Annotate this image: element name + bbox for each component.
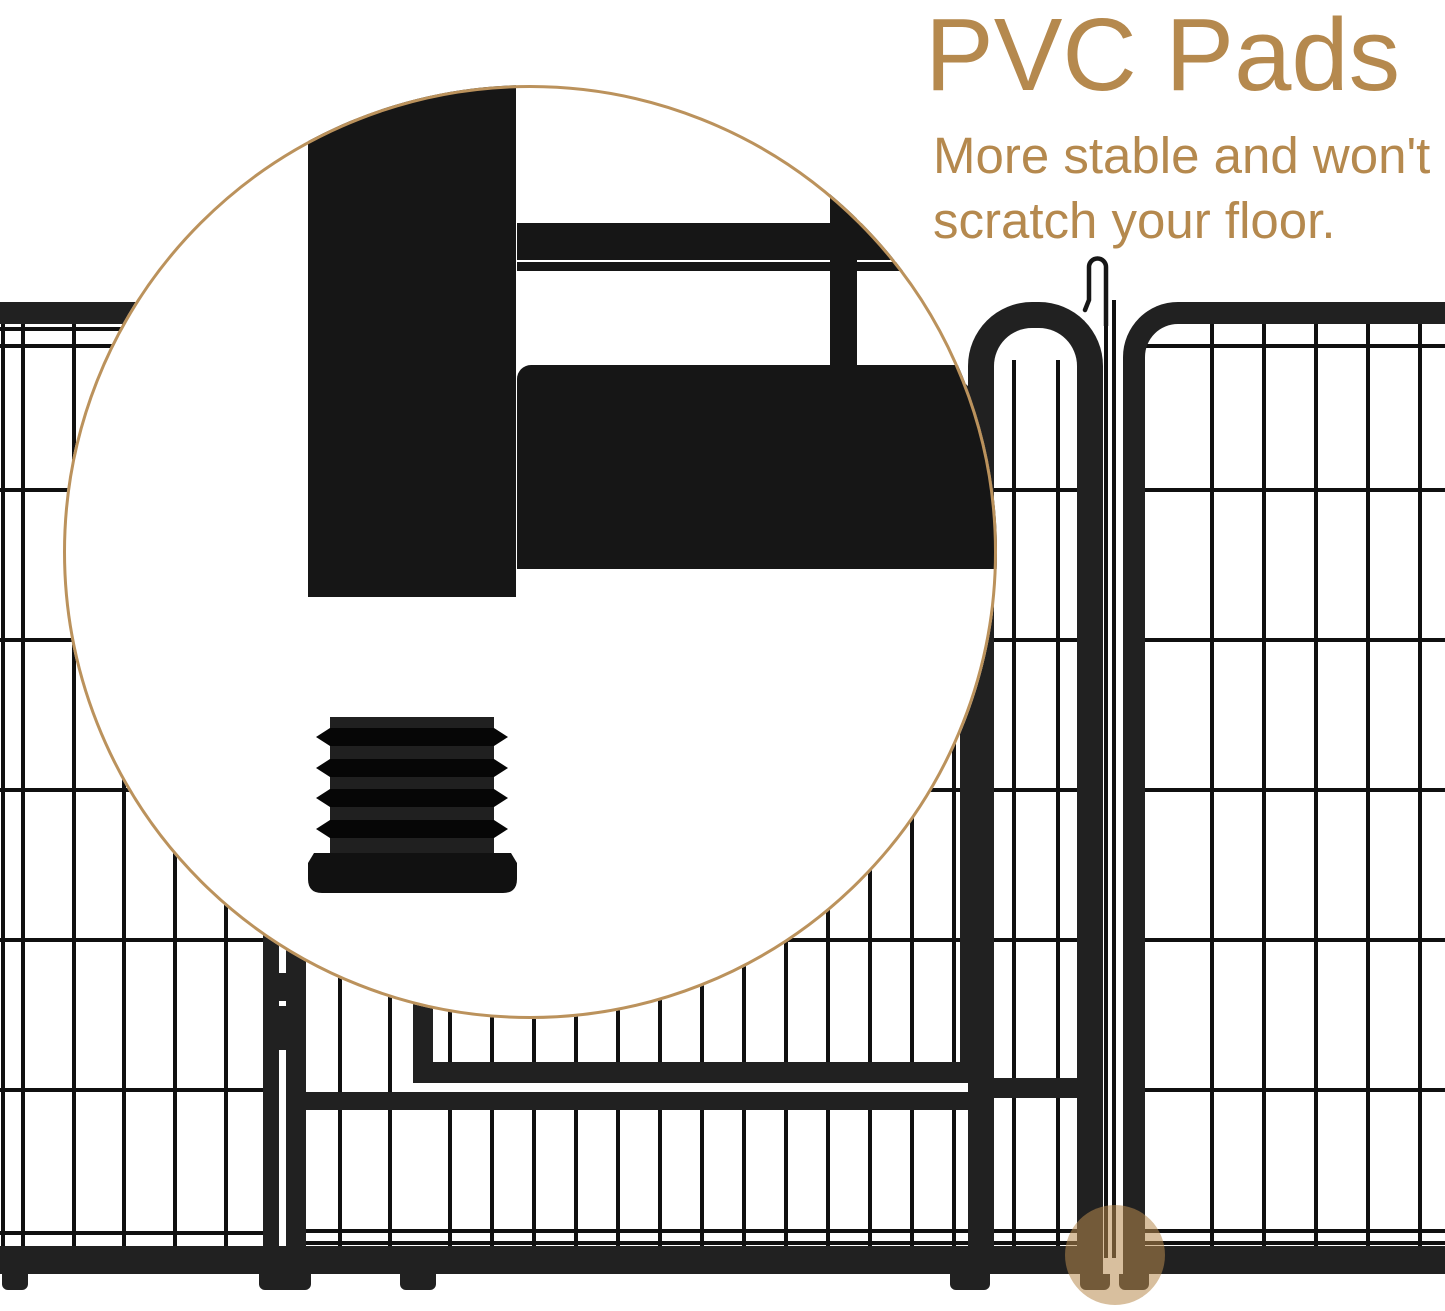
pad-location-highlight [1065,1205,1165,1305]
magnified-vertical-wire [830,175,857,370]
fence-wire [0,938,263,942]
magnified-thin-wire [517,262,997,271]
fence-wire [616,1110,620,1246]
fence-wire [532,1110,536,1246]
right-panel-bottom-rail [1123,1246,1445,1274]
fence-wire [784,1110,788,1246]
hinge [277,1006,289,1050]
middle-mid-rail [306,1092,988,1110]
callout-subtitle: More stable and won't scratch your floor… [933,123,1445,253]
fence-foot [259,1274,311,1290]
product-image-canvas: PVC Pads More stable and won't scratch y… [0,0,1445,1311]
fence-wire [21,324,25,1246]
hook-rod [1112,300,1116,1258]
magnified-post [308,85,516,597]
fence-wire [700,1110,704,1246]
fence-wire [910,1110,914,1246]
gate-mid-bar [980,1078,1103,1098]
callout: PVC Pads More stable and won't scratch y… [925,0,1445,253]
fence-wire [952,1110,956,1246]
hinge [277,973,289,1001]
middle-bottom-rail [306,1246,988,1274]
fence-wire [306,1241,988,1245]
fence-wire [0,1088,263,1092]
fence-wire [574,1110,578,1246]
fence-wire [826,1110,830,1246]
hook-rod [1104,300,1108,1258]
fence-foot [2,1274,28,1290]
fence-wire [448,1110,452,1246]
callout-title: PVC Pads [925,0,1445,109]
fence-foot [400,1274,436,1290]
callout-subtitle-line1: More stable and won't [933,123,1445,188]
fence-wire [0,1231,263,1235]
fence-wire [658,1110,662,1246]
fence-wire [868,1110,872,1246]
fence-wire [306,1229,988,1233]
right-panel-frame [1123,302,1445,1246]
fence-wire [1,324,5,1246]
hook-latch-icon [1080,248,1124,326]
fence-wire [742,1110,746,1246]
fence-wire [490,1110,494,1246]
callout-subtitle-line2: scratch your floor. [933,188,1445,253]
magnified-bottom-rail [517,365,997,569]
magnifier-circle [63,85,997,1019]
pvc-pad-icon [308,717,517,893]
fence-foot [950,1274,990,1290]
